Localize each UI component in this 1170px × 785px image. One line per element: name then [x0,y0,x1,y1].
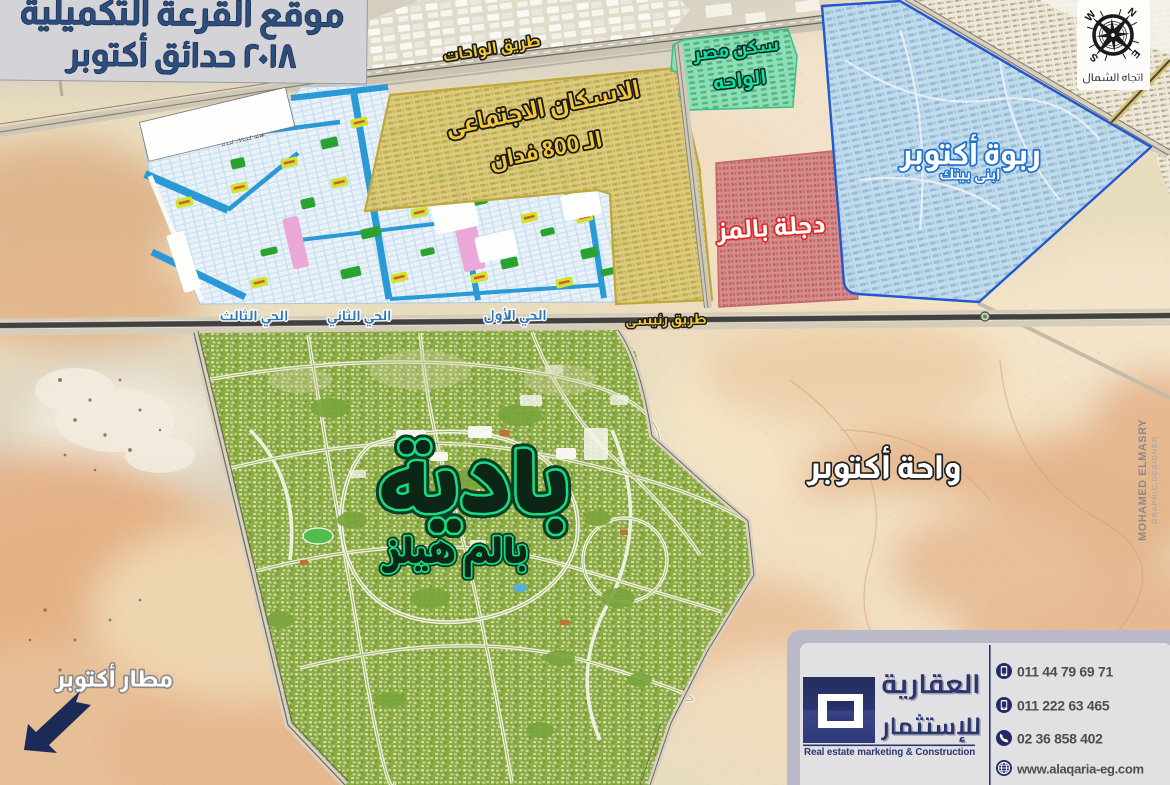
svg-text:02 36 858 402: 02 36 858 402 [1017,731,1103,747]
svg-text:GRAPHIC DESIGNER: GRAPHIC DESIGNER [1150,436,1159,524]
svg-text:011 222 63 465: 011 222 63 465 [1017,698,1110,714]
svg-text:www.alaqaria-eg.com: www.alaqaria-eg.com [1016,762,1144,777]
svg-text:MOHAMED ELMASRY: MOHAMED ELMASRY [1137,419,1149,541]
svg-text:011 44 79 69 71: 011 44 79 69 71 [1017,664,1113,680]
svg-text:Real estate marketing & Constr: Real estate marketing & Construction [804,747,975,758]
